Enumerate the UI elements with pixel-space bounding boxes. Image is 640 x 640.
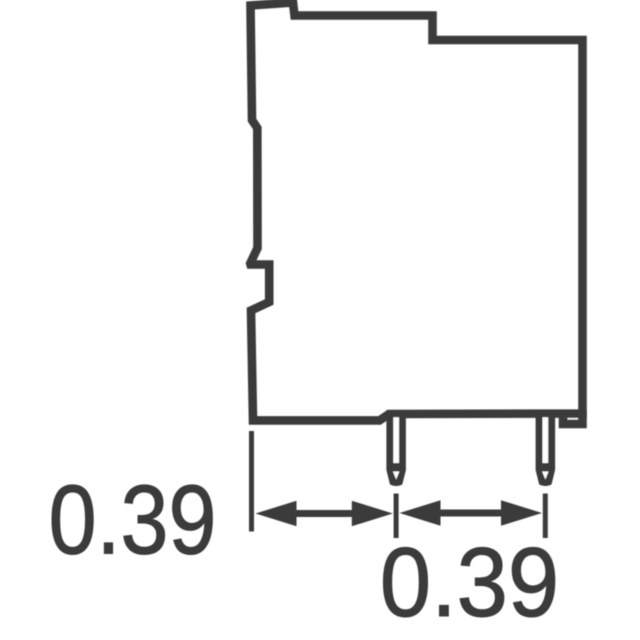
- svg-text:0.39: 0.39: [49, 464, 217, 574]
- svg-text:0.39: 0.39: [380, 528, 559, 637]
